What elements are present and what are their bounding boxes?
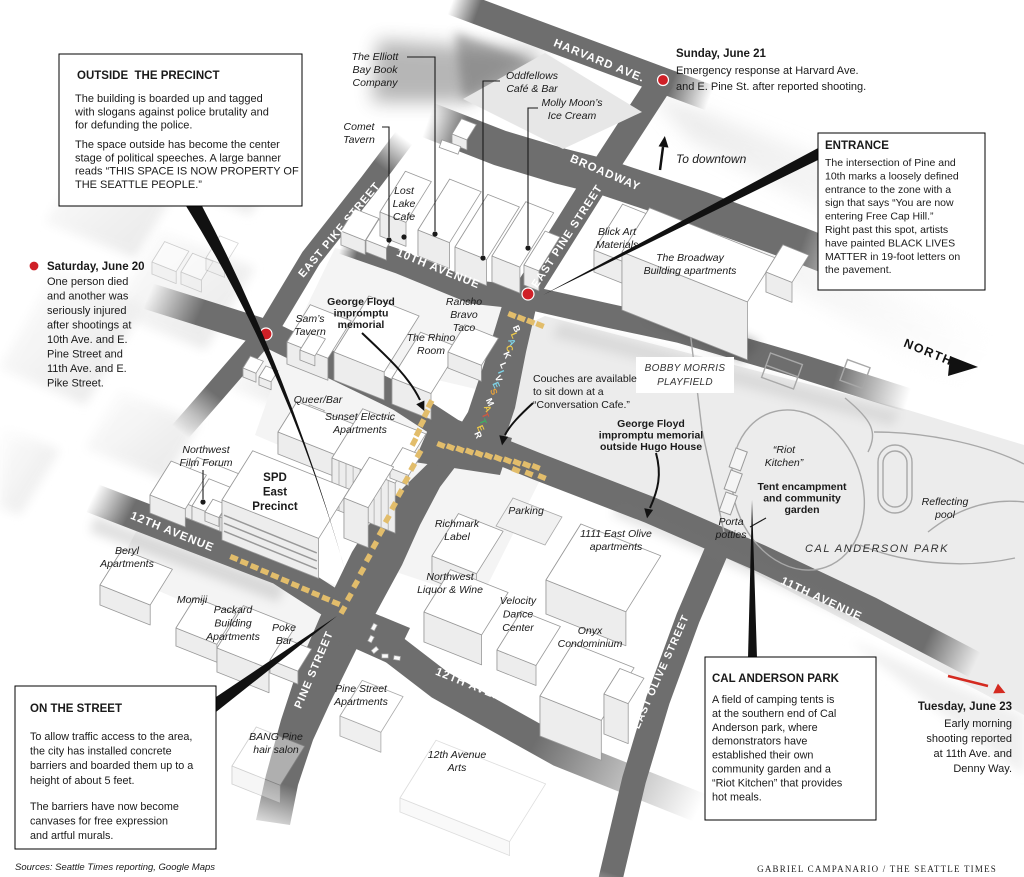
- svg-text:Sam’s: Sam’s: [296, 313, 326, 325]
- svg-text:Tavern: Tavern: [343, 134, 375, 146]
- svg-text:after shootings at: after shootings at: [47, 320, 131, 332]
- svg-text:Molly Moon’s: Molly Moon’s: [541, 97, 603, 109]
- svg-text:Rancho: Rancho: [446, 296, 482, 308]
- svg-text:Beryl: Beryl: [115, 545, 140, 557]
- svg-text:To allow traffic access to the: To allow traffic access to the area,: [30, 731, 192, 743]
- svg-text:A field of camping tents is: A field of camping tents is: [712, 694, 835, 706]
- svg-text:Momiji: Momiji: [177, 594, 208, 606]
- svg-text:Pine Street: Pine Street: [335, 683, 388, 695]
- svg-text:MATTER in 19-foot letters on: MATTER in 19-foot letters on: [825, 251, 960, 263]
- svg-text:the city has installed concret: the city has installed concrete: [30, 746, 172, 758]
- svg-text:shooting reported: shooting reported: [926, 733, 1012, 745]
- svg-text:impromptu: impromptu: [334, 308, 389, 320]
- svg-text:East: East: [263, 487, 287, 499]
- svg-text:Tavern: Tavern: [294, 326, 326, 338]
- svg-text:Onyx: Onyx: [578, 625, 603, 637]
- svg-text:ENTRANCE: ENTRANCE: [825, 140, 889, 152]
- svg-text:Company: Company: [353, 77, 399, 89]
- svg-text:Café & Bar: Café & Bar: [506, 83, 558, 95]
- svg-text:Bay Book: Bay Book: [353, 64, 399, 76]
- svg-text:Apartments: Apartments: [205, 631, 260, 643]
- svg-text:with slogans against police br: with slogans against police brutality an…: [74, 106, 269, 118]
- svg-text:Precinct: Precinct: [252, 501, 298, 513]
- svg-text:Lost: Lost: [394, 185, 415, 197]
- svg-text:Arts: Arts: [447, 762, 467, 774]
- svg-text:Bravo: Bravo: [450, 309, 478, 321]
- svg-text:reads “THIS SPACE IS NOW PROPE: reads “THIS SPACE IS NOW PROPERTY OF: [75, 166, 299, 178]
- svg-text:SPD: SPD: [263, 472, 287, 484]
- svg-text:Tuesday, June 23: Tuesday, June 23: [918, 701, 1012, 713]
- svg-text:Room: Room: [417, 345, 445, 357]
- svg-text:George Floyd: George Floyd: [617, 418, 685, 430]
- svg-text:Porta: Porta: [718, 516, 743, 528]
- svg-text:Building: Building: [214, 618, 252, 630]
- svg-text:hot meals.: hot meals.: [712, 791, 762, 803]
- svg-text:canvases for free expression: canvases for free expression: [30, 816, 168, 828]
- svg-text:The building is boarded up and: The building is boarded up and tagged: [75, 93, 263, 105]
- svg-text:Lake: Lake: [393, 198, 416, 210]
- svg-text:The barriers have now become: The barriers have now become: [30, 801, 179, 813]
- svg-text:entrance to the zone with a: entrance to the zone with a: [825, 184, 951, 196]
- svg-text:One person died: One person died: [47, 276, 128, 288]
- svg-text:“Riot: “Riot: [773, 444, 796, 456]
- svg-text:the pavement.: the pavement.: [825, 264, 892, 276]
- svg-text:Materials: Materials: [596, 239, 639, 251]
- svg-text:George Floyd: George Floyd: [327, 296, 395, 308]
- svg-text:height of about 5 feet.: height of about 5 feet.: [30, 775, 134, 787]
- svg-text:Emergency response at Harvard: Emergency response at Harvard Ave.: [676, 65, 859, 77]
- svg-text:outside Hugo House: outside Hugo House: [600, 441, 702, 453]
- svg-text:Blick Art: Blick Art: [598, 226, 637, 238]
- svg-text:1111 East Olive: 1111 East Olive: [580, 528, 652, 540]
- svg-text:Richmark: Richmark: [435, 518, 480, 530]
- svg-text:Comet: Comet: [344, 121, 376, 133]
- svg-text:GABRIEL CAMPANARIO / THE SEATT: GABRIEL CAMPANARIO / THE SEATTLE TIMES: [757, 864, 997, 874]
- svg-text:Denny Way.: Denny Way.: [953, 763, 1012, 775]
- svg-text:Parking: Parking: [508, 505, 544, 517]
- svg-text:and E. Pine St. after reported: and E. Pine St. after reported shooting.: [676, 81, 866, 93]
- svg-text:community garden and a: community garden and a: [712, 764, 831, 776]
- svg-text:Packard: Packard: [214, 604, 254, 616]
- svg-text:established their own: established their own: [712, 750, 813, 762]
- svg-text:Anderson park, where: Anderson park, where: [712, 722, 818, 734]
- svg-text:The intersection of Pine and: The intersection of Pine and: [825, 157, 956, 169]
- svg-text:to sit down at a: to sit down at a: [533, 386, 604, 398]
- svg-text:Right past this spot, artists: Right past this spot, artists: [825, 224, 948, 236]
- svg-text:Poke: Poke: [272, 622, 296, 634]
- svg-text:To downtown: To downtown: [676, 152, 747, 166]
- svg-text:garden: garden: [784, 504, 819, 516]
- svg-text:Apartments: Apartments: [99, 558, 154, 570]
- svg-text:and community: and community: [763, 493, 841, 505]
- svg-text:Apartments: Apartments: [332, 424, 387, 436]
- svg-text:Saturday, June 20: Saturday, June 20: [47, 261, 145, 273]
- svg-text:entering Free Cap Hill.”: entering Free Cap Hill.”: [825, 211, 934, 223]
- svg-text:Center: Center: [502, 622, 534, 634]
- svg-text:memorial: memorial: [338, 319, 385, 331]
- svg-text:and artful murals.: and artful murals.: [30, 830, 113, 842]
- svg-text:Bar: Bar: [276, 635, 293, 647]
- svg-text:Building apartments: Building apartments: [644, 265, 738, 277]
- svg-text:The Elliott: The Elliott: [352, 51, 400, 63]
- svg-text:stage of political speeches. A: stage of political speeches. A large ban…: [75, 152, 281, 164]
- svg-text:“Riot Kitchen” that provides: “Riot Kitchen” that provides: [712, 777, 843, 789]
- svg-text:12th Avenue: 12th Avenue: [428, 749, 487, 761]
- svg-text:Sunset Electric: Sunset Electric: [325, 411, 396, 423]
- svg-text:Velocity: Velocity: [500, 595, 537, 607]
- svg-text:Pike Street.: Pike Street.: [47, 378, 104, 390]
- svg-text:“Conversation Cafe.”: “Conversation Cafe.”: [533, 399, 630, 411]
- svg-text:Sources: Seattle Times reporti: Sources: Seattle Times reporting, Google…: [15, 862, 215, 873]
- svg-text:Early morning: Early morning: [944, 718, 1012, 730]
- svg-text:The space outside has become t: The space outside has become the center: [75, 139, 280, 151]
- svg-text:Oddfellows: Oddfellows: [506, 70, 559, 82]
- svg-text:Reflecting: Reflecting: [922, 496, 969, 508]
- svg-text:Ice Cream: Ice Cream: [548, 110, 597, 122]
- svg-text:PLAYFIELD: PLAYFIELD: [657, 377, 713, 388]
- svg-text:The Rhino: The Rhino: [407, 332, 456, 344]
- svg-text:Northwest: Northwest: [182, 444, 230, 456]
- svg-text:Northwest: Northwest: [426, 571, 474, 583]
- svg-text:hair salon: hair salon: [253, 744, 299, 756]
- svg-text:Queer/Bar: Queer/Bar: [294, 394, 343, 406]
- svg-text:THE SEATTLE PEOPLE.”: THE SEATTLE PEOPLE.”: [75, 179, 202, 191]
- svg-text:10th marks a loosely defined: 10th marks a loosely defined: [825, 170, 959, 182]
- svg-text:at 11th Ave. and: at 11th Ave. and: [934, 748, 1013, 760]
- svg-text:potties: potties: [715, 529, 748, 541]
- svg-text:Sunday, June 21: Sunday, June 21: [676, 48, 767, 60]
- svg-text:Couches are available: Couches are available: [533, 373, 637, 385]
- svg-text:barriers and boarded them up t: barriers and boarded them up to a: [30, 760, 193, 772]
- svg-text:Label: Label: [444, 531, 470, 543]
- svg-text:Kitchen”: Kitchen”: [765, 457, 804, 469]
- svg-text:BANG Pine: BANG Pine: [249, 731, 303, 743]
- svg-text:have painted BLACK LIVES: have painted BLACK LIVES: [825, 237, 955, 249]
- svg-text:Film Forum: Film Forum: [179, 457, 232, 469]
- svg-text:The Broadway: The Broadway: [656, 252, 724, 264]
- svg-text:and another was: and another was: [47, 291, 129, 303]
- svg-text:CAL ANDERSON PARK: CAL ANDERSON PARK: [712, 673, 840, 685]
- svg-text:apartments: apartments: [590, 541, 643, 553]
- svg-text:11th Ave. and E.: 11th Ave. and E.: [47, 363, 127, 375]
- svg-text:at the southern end of Cal: at the southern end of Cal: [712, 708, 836, 720]
- svg-text:Taco: Taco: [453, 322, 476, 334]
- svg-text:Apartments: Apartments: [333, 696, 388, 708]
- svg-text:Pine Street and: Pine Street and: [47, 349, 123, 361]
- svg-text:Tent encampment: Tent encampment: [757, 481, 847, 493]
- svg-text:pool: pool: [934, 509, 956, 521]
- svg-text:10th Ave. and E.: 10th Ave. and E.: [47, 334, 128, 346]
- svg-text:Cafe: Cafe: [393, 211, 415, 223]
- svg-text:sign that says “You are now: sign that says “You are now: [825, 197, 954, 209]
- svg-text:BOBBY MORRIS: BOBBY MORRIS: [645, 363, 726, 374]
- svg-text:Liquor & Wine: Liquor & Wine: [417, 584, 483, 596]
- svg-text:demonstrators have: demonstrators have: [712, 736, 807, 748]
- svg-text:OUTSIDE THE PRECINCT: OUTSIDE THE PRECINCT: [77, 70, 219, 82]
- svg-text:ON THE STREET: ON THE STREET: [30, 703, 122, 715]
- svg-text:impromptu memorial: impromptu memorial: [599, 430, 704, 442]
- svg-text:CAL ANDERSON PARK: CAL ANDERSON PARK: [805, 543, 949, 555]
- svg-text:seriously injured: seriously injured: [47, 305, 126, 317]
- svg-text:Dance: Dance: [503, 609, 534, 621]
- svg-text:for defunding the police.: for defunding the police.: [75, 120, 192, 132]
- svg-text:Condominium: Condominium: [558, 638, 623, 650]
